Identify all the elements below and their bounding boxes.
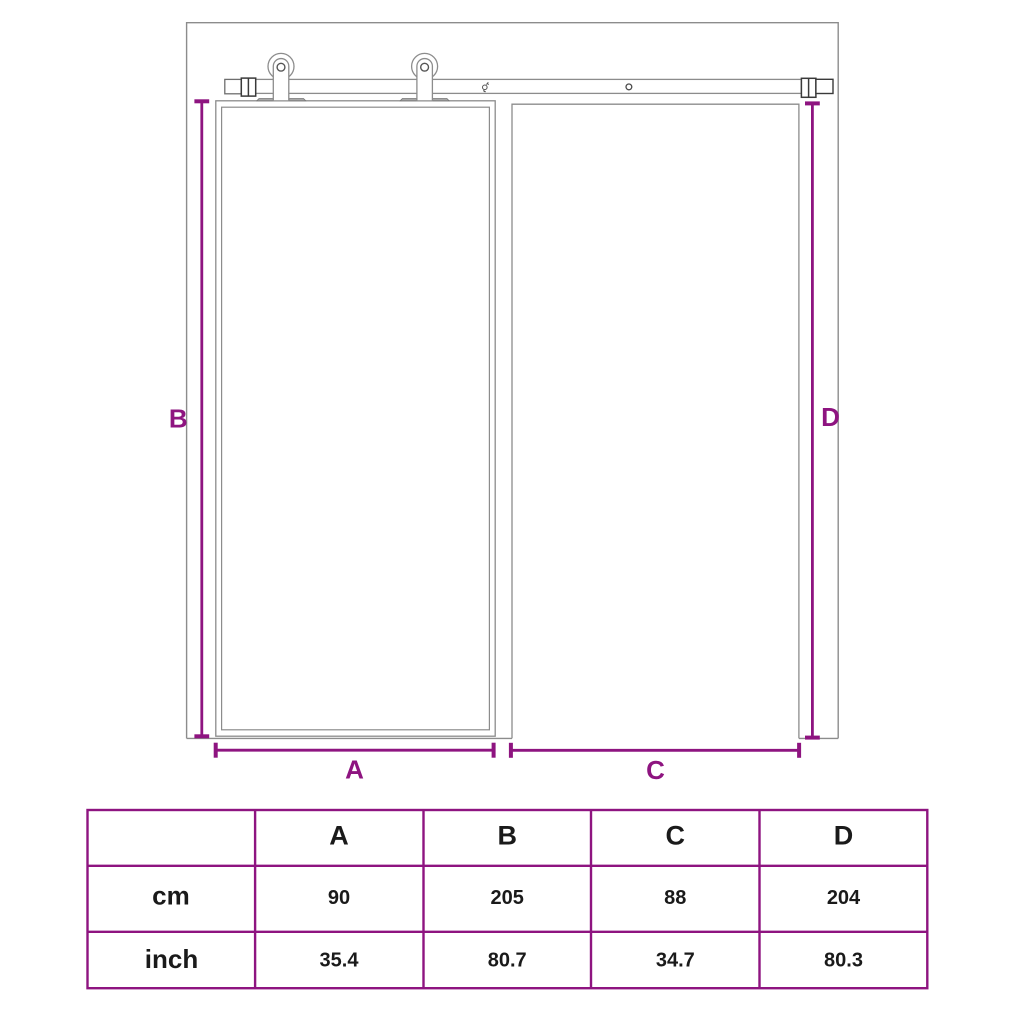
svg-text:80.7: 80.7 bbox=[488, 950, 527, 972]
svg-text:A: A bbox=[329, 820, 349, 850]
svg-text:inch: inch bbox=[145, 944, 198, 974]
svg-text:B: B bbox=[169, 403, 188, 433]
svg-text:D: D bbox=[821, 402, 840, 432]
svg-text:205: 205 bbox=[491, 887, 524, 909]
svg-text:88: 88 bbox=[664, 887, 686, 909]
svg-text:90: 90 bbox=[328, 887, 350, 909]
svg-text:C: C bbox=[646, 755, 665, 785]
svg-text:35.4: 35.4 bbox=[320, 950, 360, 972]
svg-text:B: B bbox=[497, 820, 517, 850]
svg-text:C: C bbox=[666, 820, 686, 850]
svg-text:A: A bbox=[345, 755, 364, 785]
svg-text:80.3: 80.3 bbox=[824, 950, 863, 972]
svg-text:34.7: 34.7 bbox=[656, 950, 695, 972]
svg-text:D: D bbox=[834, 820, 854, 850]
svg-text:204: 204 bbox=[827, 887, 861, 909]
svg-text:cm: cm bbox=[152, 880, 190, 910]
